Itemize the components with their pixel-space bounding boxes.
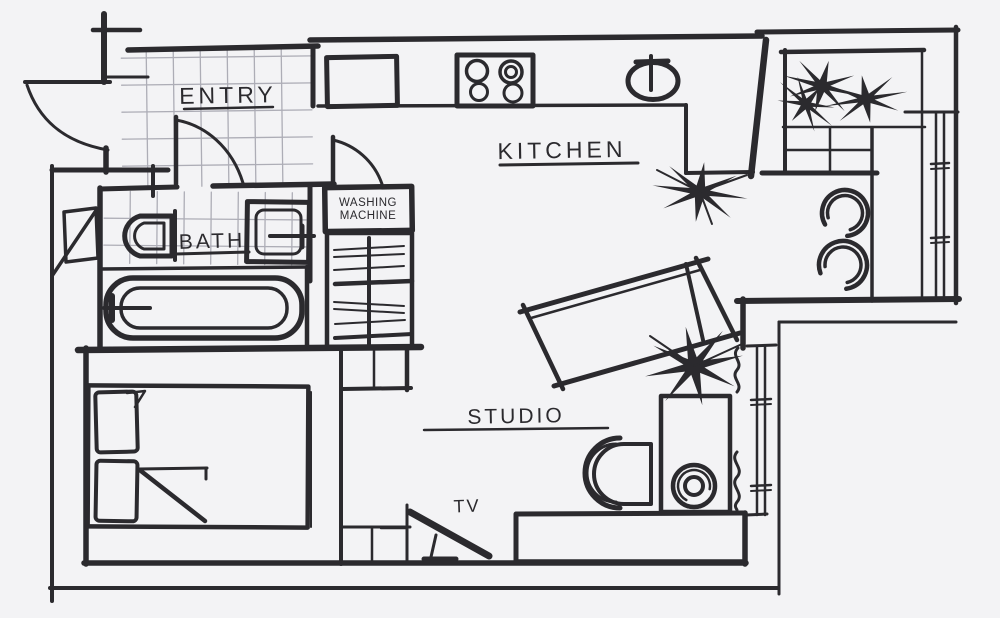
entry-tiled-floor [121, 47, 313, 187]
bathtub [104, 278, 302, 338]
bath-door [176, 117, 243, 184]
bath-label: BATH [178, 229, 245, 254]
double-bed [88, 385, 311, 527]
stool-1 [814, 182, 877, 245]
entrance-door [25, 82, 110, 150]
washing-machine: WASHING MACHINE [325, 186, 413, 231]
room-label-entry: ENTRY [179, 81, 277, 109]
stove [457, 55, 533, 106]
desk-chair [585, 438, 651, 508]
radiator-squiggle [735, 348, 740, 510]
balcony-plant [766, 51, 912, 143]
room-label-bath: BATH [176, 229, 249, 254]
studio-window [746, 345, 776, 515]
kitchen-sink [628, 56, 678, 100]
stool-2 [812, 234, 874, 296]
wall-mirror [52, 208, 98, 276]
entry-label: ENTRY [179, 81, 277, 109]
wardrobe [327, 233, 412, 347]
studio-label: STUDIO [467, 404, 565, 429]
kitchen-plant [648, 156, 751, 229]
toilet [125, 211, 175, 260]
laundry-door [333, 137, 382, 185]
washbasin [247, 202, 314, 263]
washing-machine-label-2: MACHINE [340, 210, 397, 222]
balcony-window [905, 52, 958, 300]
bench-sofa [516, 513, 744, 562]
desk [661, 396, 730, 512]
pillow-1 [95, 391, 138, 452]
folded-blanket [139, 468, 207, 521]
pillow-2 [95, 461, 137, 522]
kitchen-label: KITCHEN [497, 136, 626, 164]
kitchen-cabinet [327, 56, 398, 106]
room-label-studio: STUDIO [424, 404, 608, 430]
tv-label: TV [453, 496, 481, 517]
floor-plan-drawing: WASHING MACHINE [0, 0, 1000, 618]
room-label-kitchen: KITCHEN [497, 136, 638, 165]
washing-machine-label-1: WASHING [339, 197, 397, 209]
floor-plan: WASHING MACHINE [0, 0, 1000, 618]
